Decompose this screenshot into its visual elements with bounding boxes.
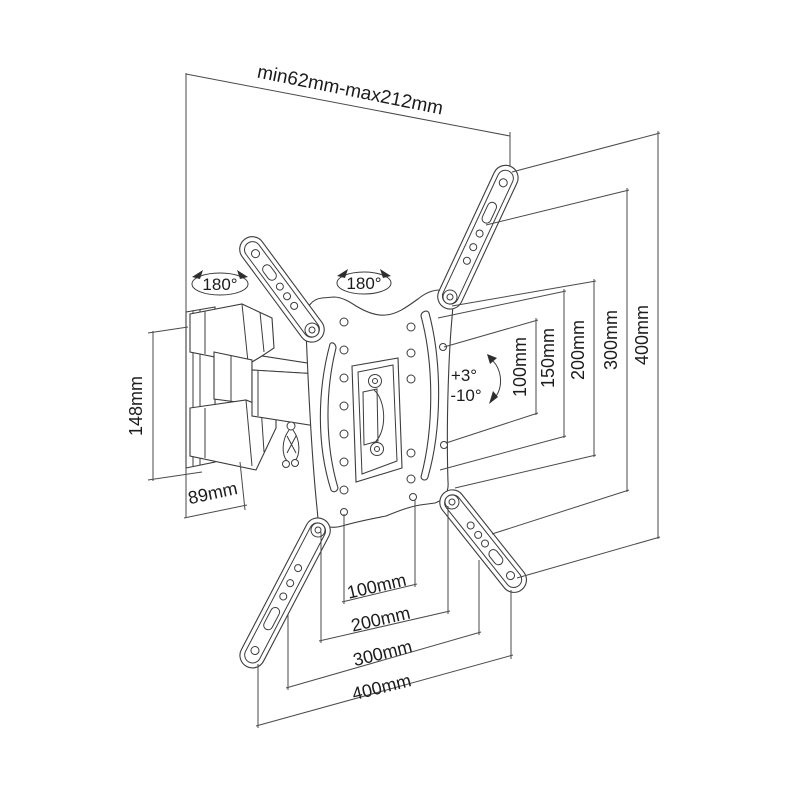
vesa-v-150-label: 150mm	[538, 328, 558, 388]
tilt-down-label: -10°	[450, 386, 481, 405]
tilt-indicator: +3° -10°	[450, 354, 500, 405]
bracket-depth-label: 89mm	[186, 478, 239, 508]
vesa-v-400-label: 400mm	[632, 305, 652, 365]
swivel-right-indicator: 180°	[337, 269, 391, 294]
cable-clip	[283, 422, 299, 468]
swivel-left-label: 180°	[202, 275, 237, 294]
technical-diagram: min62mm-max212mm	[0, 0, 800, 800]
tilt-arrow-up-icon	[487, 354, 497, 364]
vesa-v-200-label: 200mm	[568, 320, 588, 380]
vesa-v-300-label: 300mm	[601, 310, 621, 370]
rotation-arrow-left-icon	[192, 270, 203, 279]
vesa-h-400-label: 400mm	[350, 670, 413, 704]
tilt-up-label: +3°	[451, 366, 477, 385]
rotation-arrow-left2-icon	[237, 270, 248, 279]
vesa-h-200-label: 200mm	[349, 603, 412, 636]
tilt-arrow-down-icon	[489, 391, 498, 404]
extension-range-label: min62mm-max212mm	[255, 62, 444, 120]
vesa-h-300-label: 300mm	[351, 636, 414, 670]
vesa-v-100-label: 100mm	[510, 337, 530, 397]
mount-diagram: min62mm-max212mm	[0, 0, 800, 800]
arm-top-right	[434, 161, 523, 313]
tilt-housing	[352, 358, 402, 482]
bracket-height-label: 148mm	[126, 376, 146, 436]
arm-bottom-left	[236, 514, 335, 673]
swivel-left-indicator: 180°	[192, 270, 248, 295]
rotation-arrow-right2-icon	[380, 269, 391, 278]
arm-bottom-right	[435, 485, 532, 598]
bracket-depth-dimension: 89mm	[184, 462, 247, 518]
swivel-right-label: 180°	[346, 274, 381, 293]
vesa-h-100-label: 100mm	[345, 570, 408, 603]
